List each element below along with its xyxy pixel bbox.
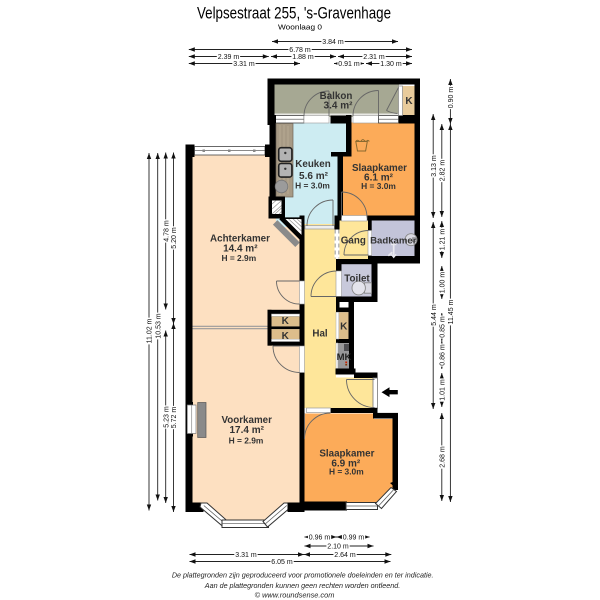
svg-text:H = 3.0m: H = 3.0m bbox=[295, 181, 330, 191]
svg-text:5.44 m: 5.44 m bbox=[431, 304, 438, 326]
svg-text:K: K bbox=[340, 322, 348, 333]
svg-text:5.72 m: 5.72 m bbox=[171, 407, 178, 429]
svg-text:K: K bbox=[282, 316, 290, 327]
svg-text:2.82 m: 2.82 m bbox=[439, 160, 446, 182]
svg-text:5.20 m: 5.20 m bbox=[171, 227, 178, 249]
svg-text:0.96 m: 0.96 m bbox=[309, 535, 331, 542]
svg-text:0.91 m: 0.91 m bbox=[338, 61, 360, 68]
svg-text:Gang: Gang bbox=[341, 236, 366, 247]
svg-text:1.21 m: 1.21 m bbox=[439, 229, 446, 251]
svg-text:De plattegronden zijn geproduc: De plattegronden zijn geproduceerd voor … bbox=[172, 571, 434, 580]
svg-text:3.13 m: 3.13 m bbox=[431, 155, 438, 177]
svg-text:10.53 m: 10.53 m bbox=[155, 313, 162, 338]
svg-text:K: K bbox=[282, 331, 290, 342]
svg-text:0.86 m: 0.86 m bbox=[439, 344, 446, 366]
svg-text:1.88 m: 1.88 m bbox=[292, 54, 314, 61]
svg-text:2.64 m: 2.64 m bbox=[334, 552, 356, 559]
svg-text:3.4 m²: 3.4 m² bbox=[324, 101, 354, 112]
svg-text:H = 3.0m: H = 3.0m bbox=[329, 466, 364, 476]
svg-text:1.30 m: 1.30 m bbox=[380, 61, 402, 68]
svg-text:Keuken: Keuken bbox=[295, 159, 330, 170]
svg-text:5.23 m: 5.23 m bbox=[163, 406, 170, 428]
svg-text:Hal: Hal bbox=[312, 329, 328, 340]
svg-text:2.68 m: 2.68 m bbox=[439, 446, 446, 468]
svg-text:H = 2.9m: H = 2.9m bbox=[221, 253, 256, 263]
svg-text:11.02 m: 11.02 m bbox=[147, 318, 154, 343]
svg-text:Woonlaag 0: Woonlaag 0 bbox=[278, 23, 322, 32]
svg-text:© www.roundsense.com: © www.roundsense.com bbox=[255, 591, 335, 600]
svg-text:2.10 m: 2.10 m bbox=[327, 544, 349, 551]
svg-text:H = 3.0m: H = 3.0m bbox=[361, 181, 396, 191]
svg-text:0.99 m: 0.99 m bbox=[343, 535, 365, 542]
svg-text:3.31 m: 3.31 m bbox=[235, 552, 257, 559]
svg-text:MK: MK bbox=[337, 352, 352, 363]
svg-text:6.05 m: 6.05 m bbox=[271, 559, 293, 566]
svg-text:H = 2.9m: H = 2.9m bbox=[229, 435, 264, 445]
svg-text:3.84 m: 3.84 m bbox=[322, 39, 344, 46]
svg-text:3.31 m: 3.31 m bbox=[233, 61, 255, 68]
svg-text:Velpsestraat 255, 's-Gravenhag: Velpsestraat 255, 's-Gravenhage bbox=[197, 5, 391, 23]
svg-text:Toilet: Toilet bbox=[344, 274, 370, 285]
svg-text:Badkamer: Badkamer bbox=[370, 236, 417, 247]
svg-text:4.78 m: 4.78 m bbox=[163, 220, 170, 242]
svg-text:Aan de plattegronden kunnen ge: Aan de plattegronden kunnen geen rechten… bbox=[204, 581, 400, 590]
svg-text:K: K bbox=[405, 96, 413, 107]
svg-text:0.90 m: 0.90 m bbox=[448, 87, 455, 109]
svg-text:11.45 m: 11.45 m bbox=[448, 299, 455, 324]
svg-text:1.01 m: 1.01 m bbox=[439, 379, 446, 401]
svg-text:0.85 m: 0.85 m bbox=[439, 316, 446, 338]
svg-text:1.00 m: 1.00 m bbox=[439, 272, 446, 294]
